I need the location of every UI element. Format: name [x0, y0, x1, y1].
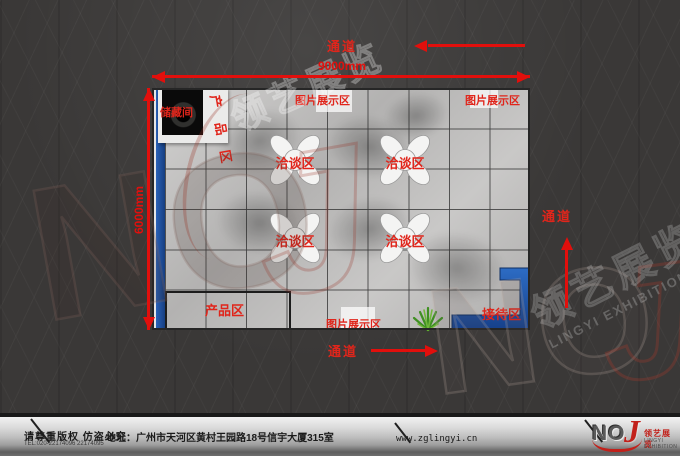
storage-room-label: 储藏间 — [160, 104, 193, 120]
logo-underline-swoosh — [592, 439, 642, 452]
dimension-width-label: 9000mm — [318, 59, 366, 73]
footer-logo: NO J 领艺展览 LINGYI EXHIBITION — [592, 422, 678, 452]
footer-address: 地址：广州市天河区黄村王园路18号信宇大厦315室 — [106, 429, 334, 444]
dimension-height-label: 6000mm — [132, 185, 146, 235]
negotiation-label-3: 洽谈区 — [265, 231, 325, 250]
aisle-arrowhead-right — [561, 237, 573, 250]
reception-label: 接待区 — [482, 304, 521, 323]
aisle-label-top: 通道 — [327, 36, 357, 55]
watermark-brand-cn: 领艺展览 — [524, 215, 680, 338]
negotiation-label-1: 洽谈区 — [265, 153, 325, 172]
aisle-label-bottom: 通道 — [328, 341, 358, 360]
dimension-arrowhead-left — [152, 71, 165, 83]
aisle-arrowhead-top — [414, 40, 427, 52]
watermark-text: J — [588, 226, 680, 416]
dimension-arrowhead-up — [143, 88, 155, 101]
picture-display-label-top-right: 图片展示区 — [465, 92, 520, 108]
dimension-line-left — [147, 88, 150, 330]
exhibition-floorplan-canvas: NO J NO J 领艺展览 LINGYI EXHIBITION 领艺展览 储藏… — [0, 0, 680, 456]
footer-website[interactable]: www.zglingyi.cn — [396, 434, 477, 444]
dimension-arrowhead-down — [143, 317, 155, 330]
dimension-arrowhead-right — [517, 71, 530, 83]
aisle-arrow-top — [428, 44, 525, 47]
dimension-line-top — [152, 75, 530, 78]
aisle-arrow-right — [565, 250, 568, 308]
aisle-arrow-bottom — [371, 349, 425, 352]
logo-brand-en: LINGYI EXHIBITION — [644, 438, 678, 450]
product-area-bottom-label: 产品区 — [205, 300, 244, 319]
negotiation-label-4: 洽谈区 — [375, 231, 435, 250]
plant-icon — [410, 304, 446, 334]
picture-display-label-top-left: 图片展示区 — [295, 92, 350, 108]
picture-display-label-bottom: 图片展示区 — [326, 316, 381, 332]
footer-tel: TEL:020-22174096 22174095 — [24, 441, 104, 447]
negotiation-label-2: 洽谈区 — [375, 153, 435, 172]
floor-plan: 储藏间 产品区 图片展示区 图片展示区 — [152, 88, 530, 330]
aisle-arrowhead-bottom — [425, 345, 438, 357]
aisle-label-right: 通道 — [542, 206, 572, 225]
